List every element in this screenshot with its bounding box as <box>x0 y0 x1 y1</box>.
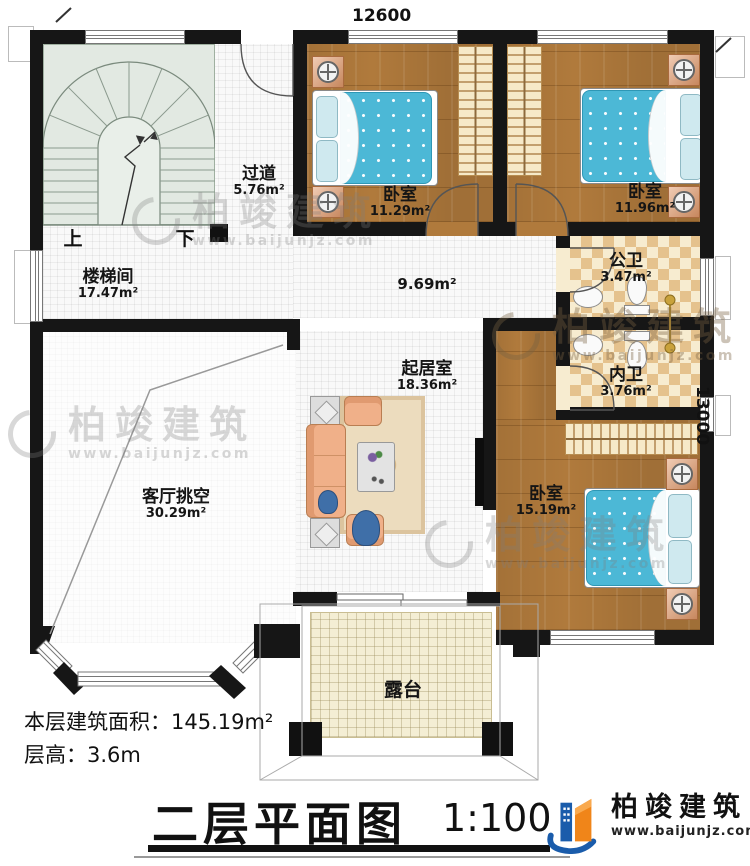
wardrobe-bedroom1 <box>458 46 493 176</box>
floor-area-label: 本层建筑面积： <box>24 710 171 734</box>
room-label-private-bath: 内卫 3.76m² <box>600 366 651 400</box>
toilet-tank <box>624 331 650 341</box>
floor-height-note: 层高：3.6m <box>24 739 273 772</box>
wall <box>467 592 500 606</box>
title-underline-thin <box>134 856 570 858</box>
pillow <box>316 96 338 138</box>
wall <box>556 236 570 248</box>
window <box>700 258 714 316</box>
pillow <box>316 140 338 182</box>
brand-name: 柏竣建筑 <box>611 792 750 824</box>
pillow <box>668 494 692 538</box>
wall <box>293 222 426 236</box>
sink <box>573 286 603 308</box>
person-figure <box>318 490 338 514</box>
window <box>348 30 458 44</box>
wall <box>458 30 537 44</box>
door-opening <box>556 366 570 410</box>
table-lamp-icon <box>314 400 338 424</box>
stairs-up-label: 上 <box>63 224 82 251</box>
sofa-chair <box>344 396 382 426</box>
lamp-icon <box>673 191 695 213</box>
tv <box>475 438 484 506</box>
wall <box>513 645 540 657</box>
floor-terrace <box>310 612 492 738</box>
room-label-bedroom1: 卧室 11.29m² <box>370 186 430 220</box>
exterior-detail <box>715 36 745 78</box>
wall <box>483 318 570 331</box>
brand-text: 柏竣建筑 www.baijunjz.com <box>611 792 750 839</box>
wall <box>483 331 496 510</box>
wall <box>493 44 507 222</box>
wall <box>556 317 714 330</box>
title-underline <box>148 845 550 852</box>
wall <box>700 432 714 645</box>
side-table <box>310 396 340 426</box>
room-label-void: 客厅挑空 30.29m² <box>142 488 210 522</box>
wall <box>568 222 714 236</box>
room-label-living: 起居室 18.36m² <box>397 360 457 394</box>
door-opening <box>426 222 478 236</box>
wall <box>30 319 300 332</box>
floor-height-value: 3.6m <box>87 743 141 767</box>
plan-scale: 1:100 <box>442 796 552 840</box>
window <box>537 30 668 44</box>
table-lamp-icon <box>314 522 338 546</box>
floor-plan: 过道 5.76m² 卧室 11.29m² 卧室 11.96m² 楼梯间 17.4… <box>0 0 750 866</box>
pillow <box>680 138 702 180</box>
door-opening <box>241 30 293 44</box>
floor-bedroom3-passage <box>496 331 556 420</box>
door-opening <box>556 248 570 292</box>
window <box>85 30 185 44</box>
dimension-right: 13000 <box>692 386 712 445</box>
staircase <box>43 44 215 226</box>
person-figure <box>352 510 380 546</box>
window-sill <box>715 256 731 320</box>
wall <box>30 322 43 654</box>
room-label-hall-area: 9.69m² <box>397 276 456 293</box>
room-label-corridor: 过道 5.76m² <box>233 165 284 199</box>
nightstand <box>312 186 344 218</box>
coffee-table <box>357 442 395 492</box>
wall <box>293 592 337 606</box>
sink <box>573 334 603 356</box>
toilet-tank <box>624 305 650 315</box>
wardrobe-bedroom2 <box>507 46 542 176</box>
wall <box>30 30 43 250</box>
terrace-column <box>289 722 322 756</box>
window-sill <box>715 395 731 436</box>
brand-url: www.baijunjz.com <box>611 824 750 839</box>
room-label-terrace: 露台 <box>384 680 422 701</box>
lamp-icon <box>671 463 693 485</box>
room-label-public-bath: 公卫 3.47m² <box>600 252 651 286</box>
window <box>550 630 655 645</box>
stairs-down-label: 下 <box>175 224 194 251</box>
wall <box>478 222 516 236</box>
brand-logo-icon <box>545 792 603 854</box>
nightstand <box>666 458 698 490</box>
nightstand <box>666 588 698 620</box>
pillow <box>668 540 692 584</box>
floor-height-label: 层高： <box>24 743 87 767</box>
wall <box>293 30 307 236</box>
lamp-icon <box>317 191 339 213</box>
nightstand <box>668 54 700 86</box>
lamp-icon <box>671 593 693 615</box>
door-opening <box>516 222 568 236</box>
lamp-icon <box>673 59 695 81</box>
terrace-column <box>482 722 513 756</box>
room-label-bedroom3: 卧室 15.19m² <box>516 485 576 519</box>
brand-logo: 柏竣建筑 www.baijunjz.com <box>545 792 750 854</box>
pillow <box>680 94 702 136</box>
floor-area-note: 本层建筑面积：145.19m² <box>24 706 273 739</box>
wall <box>556 407 714 420</box>
nightstand <box>312 56 344 88</box>
window-sill <box>14 250 31 324</box>
window <box>30 250 43 322</box>
wardrobe-bedroom3 <box>565 423 698 455</box>
room-label-bedroom2: 卧室 11.96m² <box>615 183 675 217</box>
sliding-door <box>337 594 467 606</box>
lamp-icon <box>317 61 339 83</box>
wall <box>287 319 300 350</box>
column <box>210 224 228 242</box>
floor-area-value: 145.19m² <box>171 710 273 734</box>
floor-notes: 本层建筑面积：145.19m² 层高：3.6m <box>24 706 273 771</box>
wall <box>496 630 550 645</box>
wall <box>185 30 241 44</box>
dimension-top: 12600 <box>352 6 411 26</box>
side-table <box>310 518 340 548</box>
wall <box>655 630 714 645</box>
room-label-stairwell: 楼梯间 17.47m² <box>78 268 138 302</box>
